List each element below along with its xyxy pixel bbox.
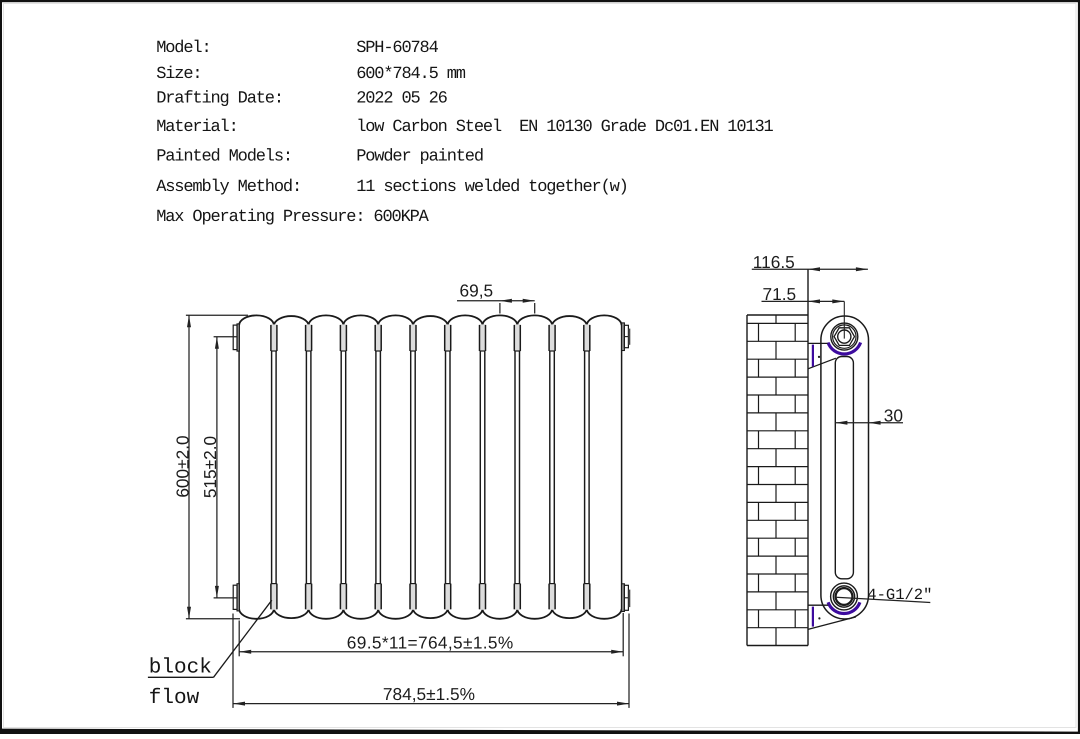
svg-text:600±2.0: 600±2.0 [172, 435, 192, 497]
svg-text:Powder painted: Powder painted [356, 148, 483, 167]
svg-text:30: 30 [884, 405, 903, 425]
svg-text:Size:: Size: [156, 65, 201, 84]
svg-text:Assembly Method:: Assembly Method: [156, 178, 301, 197]
svg-text:4-G1/2″: 4-G1/2″ [867, 586, 932, 604]
svg-text:block: block [149, 657, 212, 680]
svg-text:Max Operating Pressure: 600KPA: Max Operating Pressure: 600KPA [156, 208, 429, 227]
svg-text:784,5±1.5%: 784,5±1.5% [383, 684, 475, 704]
svg-text:116.5: 116.5 [753, 252, 795, 272]
svg-text:Model:: Model: [156, 39, 210, 58]
svg-text:515±2.0: 515±2.0 [200, 436, 220, 498]
svg-text:600*784.5 mm: 600*784.5 mm [356, 65, 466, 84]
svg-text:Painted Models:: Painted Models: [156, 148, 292, 167]
svg-text:SPH-60784: SPH-60784 [356, 39, 438, 58]
svg-text:Drafting Date:: Drafting Date: [156, 89, 283, 108]
svg-text:11 sections welded together(w): 11 sections welded together(w) [356, 178, 628, 197]
svg-text:71.5: 71.5 [763, 284, 797, 304]
svg-text:69,5: 69,5 [460, 280, 494, 300]
svg-text:low Carbon Steel EN 10130 Gra: low Carbon Steel EN 10130 Grade Dc01.EN … [356, 118, 773, 137]
svg-text:flow: flow [149, 687, 200, 710]
svg-text:2022 05 26: 2022 05 26 [356, 89, 447, 108]
svg-text:Material:: Material: [156, 118, 237, 137]
svg-text:69.5*11=764,5±1.5%: 69.5*11=764,5±1.5% [347, 632, 514, 652]
